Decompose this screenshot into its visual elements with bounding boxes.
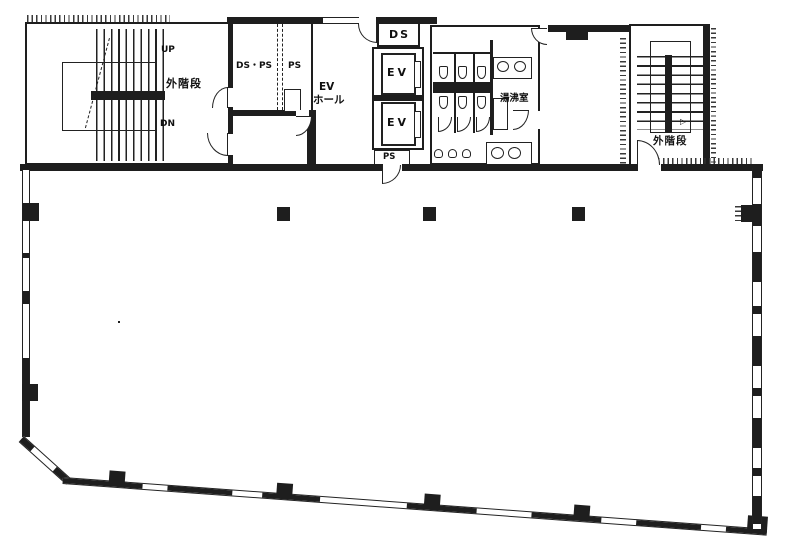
corridor-top-wall bbox=[548, 25, 634, 32]
door-gap-right-stair bbox=[638, 164, 661, 171]
toilet-fixture-3 bbox=[477, 66, 486, 79]
hatch-strip-right-stair-left bbox=[620, 38, 626, 164]
urinal-1 bbox=[434, 149, 443, 158]
right-stair-arrow-icon: ▷ bbox=[680, 118, 686, 126]
bottom-column-2 bbox=[276, 483, 293, 497]
label-dsps-ps: PS bbox=[288, 62, 301, 71]
right-stair-right-wall bbox=[703, 24, 710, 167]
stall-top-rail bbox=[433, 52, 492, 54]
basin-4 bbox=[508, 147, 521, 159]
stall-divider-2a bbox=[473, 52, 475, 82]
label-ev-hall-2: ホール bbox=[313, 95, 345, 106]
stall-divider-2b bbox=[473, 93, 475, 133]
bottom-column-3 bbox=[424, 494, 441, 508]
bottom-column-4 bbox=[573, 505, 590, 519]
right-wall-column bbox=[741, 205, 754, 222]
scan-speck bbox=[118, 321, 120, 323]
label-ev-hall-1: EV bbox=[319, 82, 334, 93]
toilet-plumbing-wall bbox=[433, 82, 492, 93]
right-stair-handrail bbox=[665, 55, 672, 133]
door-gap-ev-hall-top bbox=[359, 17, 376, 24]
dsps-dashed-line-a bbox=[277, 24, 278, 110]
door-ev-hall-top bbox=[358, 24, 377, 43]
hatch-strip-right-stair-right bbox=[711, 28, 716, 164]
door-ev-hall-mainfloor bbox=[382, 165, 401, 184]
left-wall-column-1 bbox=[22, 203, 39, 221]
door-gap-stair-upper bbox=[228, 88, 233, 107]
toilet-fixture-6 bbox=[477, 96, 486, 109]
door-gap-kitchenette bbox=[537, 111, 540, 129]
basin-3 bbox=[491, 147, 504, 159]
label-dn: DN bbox=[160, 120, 175, 129]
label-left-stair: 外階段 bbox=[166, 78, 202, 89]
elevator-2-door bbox=[414, 111, 421, 138]
label-ds: DS bbox=[389, 29, 410, 40]
basin-2 bbox=[514, 61, 526, 72]
right-wall-column-hatch bbox=[735, 206, 741, 221]
dsps-small-shaft-box bbox=[284, 89, 301, 112]
bottom-wall bbox=[62, 477, 767, 536]
basin-1 bbox=[497, 61, 509, 72]
toilet-fixture-2 bbox=[458, 66, 467, 79]
elevator-1-door bbox=[414, 61, 421, 88]
hatch-strip-top-left bbox=[27, 15, 170, 22]
toilet-fixture-1 bbox=[439, 66, 448, 79]
floor-plan-canvas: UP 外階段 DN DS・PS PS EV ホール DS EV EV PS bbox=[0, 0, 787, 550]
elevator-divider-wall bbox=[372, 95, 424, 101]
door-gap-stair-lower bbox=[228, 134, 233, 155]
urinal-2 bbox=[448, 149, 457, 158]
label-ev-1: EV bbox=[387, 67, 409, 78]
label-ds-ps: DS・PS bbox=[236, 62, 272, 71]
label-right-stair: 外階段 bbox=[653, 136, 688, 147]
interior-column-2 bbox=[423, 207, 436, 221]
dsps-dashed-line-b bbox=[282, 24, 283, 110]
stall-divider-1a bbox=[454, 52, 456, 82]
toilet-fixture-4 bbox=[439, 96, 448, 109]
toilet-fixture-5 bbox=[458, 96, 467, 109]
label-up: UP bbox=[161, 46, 175, 55]
label-kitchenette: 湯沸室 bbox=[500, 94, 529, 104]
ev-hall-top-window bbox=[323, 17, 363, 24]
right-wall bbox=[752, 168, 762, 529]
left-stair-handrail bbox=[91, 91, 165, 100]
bottom-column-1 bbox=[109, 470, 126, 484]
interior-column-3 bbox=[572, 207, 585, 221]
label-ev-2: EV bbox=[387, 117, 409, 128]
stall-divider-1b bbox=[454, 93, 456, 133]
label-ps-bottom: PS bbox=[383, 153, 395, 162]
interior-column-1 bbox=[277, 207, 290, 221]
corridor-column bbox=[566, 25, 588, 40]
urinal-3 bbox=[462, 149, 471, 158]
left-wall-column-2 bbox=[22, 384, 38, 401]
